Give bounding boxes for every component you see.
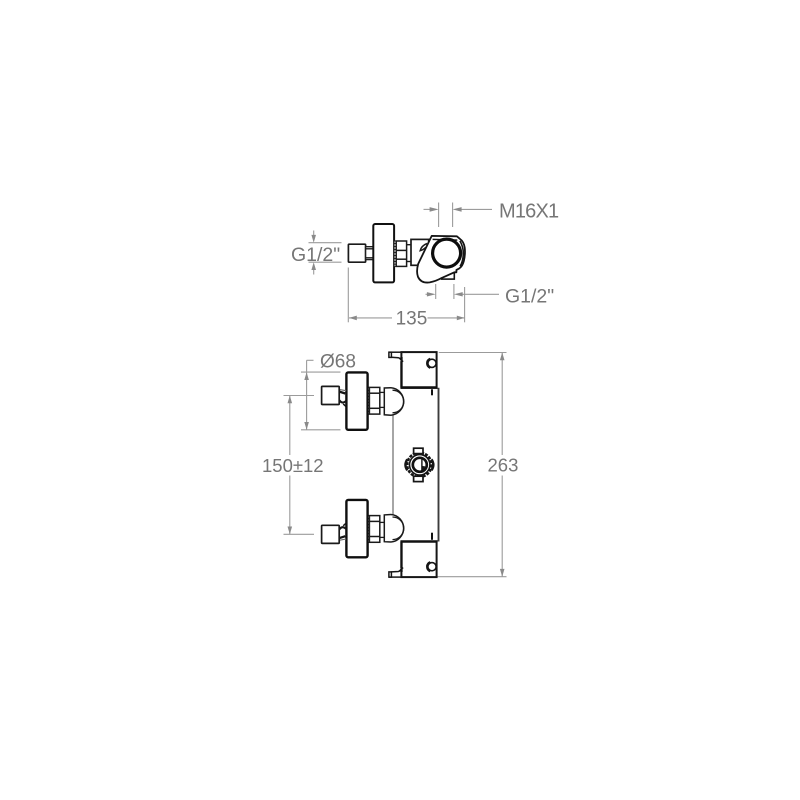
svg-text:Ø68: Ø68: [320, 351, 356, 372]
svg-text:G1/2": G1/2": [505, 285, 554, 307]
svg-text:M16X1: M16X1: [499, 201, 559, 223]
svg-text:150±12: 150±12: [262, 455, 324, 476]
svg-text:263: 263: [488, 455, 519, 476]
svg-text:G1/2": G1/2": [291, 244, 340, 266]
svg-text:135: 135: [396, 308, 428, 329]
